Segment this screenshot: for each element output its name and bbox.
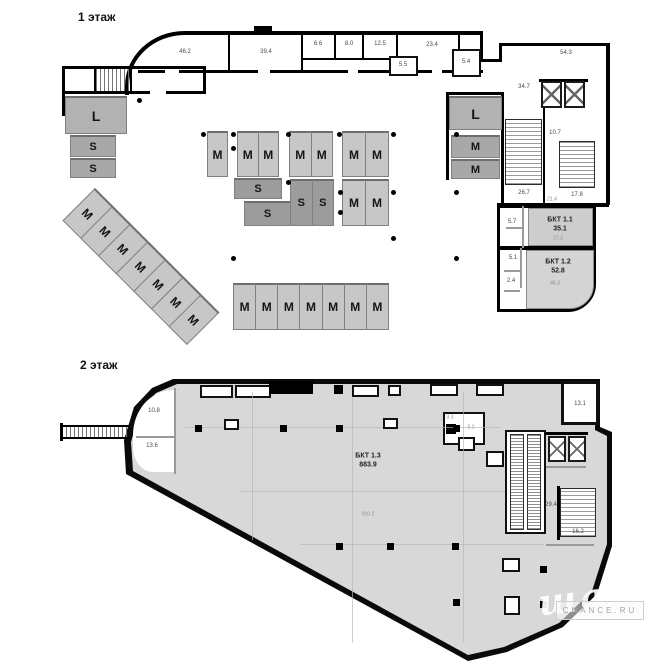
- storage-unit-s: S: [234, 178, 282, 199]
- storage-unit-m: M: [237, 131, 259, 177]
- door-gap: [258, 70, 270, 73]
- column-dot: [454, 132, 459, 137]
- wall: [62, 66, 206, 69]
- bkt11-area: 35.1: [553, 226, 567, 233]
- area-label: 23.4: [426, 42, 438, 48]
- elevator: [541, 81, 562, 108]
- grid-line: [240, 491, 505, 492]
- area-label: 5.4: [462, 59, 470, 65]
- wall-room: [200, 385, 233, 398]
- door-gap: [348, 70, 358, 73]
- wall-room: [352, 385, 379, 397]
- wall: [546, 466, 586, 468]
- column-dot: [338, 210, 343, 215]
- column: [195, 425, 202, 432]
- wall: [203, 31, 483, 35]
- wall: [136, 436, 174, 438]
- fixture-box: [224, 419, 239, 430]
- wall: [301, 58, 398, 60]
- area-label: 54.3: [560, 50, 572, 56]
- wall: [130, 66, 132, 93]
- wall: [522, 206, 524, 248]
- wall: [546, 544, 594, 546]
- storage-unit-s: S: [290, 179, 313, 226]
- area-label: 10.8: [148, 408, 160, 414]
- column: [540, 566, 547, 573]
- watermark-site: CHANCE.RU: [556, 601, 644, 620]
- floor-plan-canvas: 1 этаж L S S L: [0, 0, 670, 670]
- wall-box: [486, 451, 504, 467]
- wall: [62, 66, 65, 94]
- column: [387, 543, 394, 550]
- bkt13-area: 883.9: [359, 462, 377, 469]
- wall: [499, 43, 609, 46]
- dimension-label: 21.4: [547, 198, 557, 203]
- column-dot: [337, 132, 342, 137]
- storage-unit-l: L: [65, 96, 127, 134]
- area-label: 5.5: [399, 62, 407, 68]
- storage-unit-m: M: [255, 283, 278, 330]
- area-label: 6.6: [314, 41, 322, 47]
- column-dot: [454, 256, 459, 261]
- storage-unit-m: M: [289, 131, 312, 177]
- wall: [506, 227, 522, 229]
- column-dot: [231, 256, 236, 261]
- area-label: 10.7: [549, 130, 561, 136]
- storage-unit-s: S: [70, 158, 116, 178]
- bottom-unit-strip: M M M M M M M: [233, 283, 389, 330]
- bridge-wall: [62, 437, 130, 439]
- wall: [606, 43, 610, 205]
- bkt12-name: БКТ 1.2: [545, 259, 570, 266]
- storage-unit-m: M: [207, 131, 228, 177]
- area-label: 34.7: [518, 84, 530, 90]
- bkt12-sub-area: 46.3: [550, 282, 560, 287]
- area-label: 5.1: [509, 255, 517, 261]
- solid-wall-block: [269, 381, 313, 394]
- elevator: [568, 436, 586, 462]
- column: [453, 425, 460, 432]
- area-label: 13.6: [146, 443, 158, 449]
- column-dot: [391, 236, 396, 241]
- floor2-title: 2 этаж: [80, 358, 118, 372]
- area-label: 12.5: [374, 41, 386, 47]
- storage-unit-m: M: [366, 283, 389, 330]
- wall: [62, 91, 206, 94]
- area-label: 5.7: [508, 219, 516, 225]
- fixture-box: [504, 596, 520, 615]
- storage-unit-m: M: [342, 131, 366, 177]
- area-label: 8.0: [345, 41, 353, 47]
- storage-unit-s: S: [70, 135, 116, 157]
- storage-unit-m: M: [311, 131, 334, 177]
- wall: [203, 66, 206, 94]
- storage-unit-m: M: [299, 283, 322, 330]
- wall: [362, 31, 364, 60]
- wall: [334, 31, 336, 60]
- wall: [254, 26, 272, 35]
- wall: [546, 432, 588, 435]
- area-label: 17.8: [571, 192, 583, 198]
- elevator: [564, 81, 585, 108]
- column-dot: [391, 190, 396, 195]
- staircase: [559, 141, 595, 188]
- storage-unit-m: M: [344, 283, 367, 330]
- wall: [228, 31, 230, 71]
- wall-room: [388, 385, 401, 396]
- wall-block: [334, 385, 343, 394]
- grid-line: [463, 392, 464, 642]
- storage-unit-m: M: [365, 131, 389, 177]
- wall-room: [235, 385, 271, 398]
- floor1-title: 1 этаж: [78, 10, 116, 24]
- wall: [174, 388, 176, 474]
- column-dot: [286, 132, 291, 137]
- storage-unit-s: S: [244, 201, 291, 226]
- storage-unit-m: M: [277, 283, 300, 330]
- wall: [504, 290, 520, 292]
- wall: [504, 270, 520, 272]
- storage-unit-m: M: [258, 131, 280, 177]
- bridge: [62, 427, 130, 437]
- column: [336, 425, 343, 432]
- column: [336, 543, 343, 550]
- entry-stairs: [96, 69, 129, 91]
- wall: [446, 92, 504, 95]
- door-gap: [432, 70, 442, 73]
- bkt11-sub-area: 27.3: [553, 237, 563, 242]
- storage-unit-l: L: [449, 96, 502, 130]
- staircase: [505, 119, 542, 185]
- column-dot: [231, 132, 236, 137]
- wall: [301, 31, 303, 71]
- column-dot: [391, 132, 396, 137]
- shaft-box: [458, 437, 475, 451]
- area-label: 16.2: [572, 529, 584, 535]
- wall: [60, 423, 63, 441]
- escalator-lane: [510, 434, 524, 530]
- column: [453, 599, 460, 606]
- storage-unit-m: M: [365, 179, 389, 226]
- column-dot: [137, 98, 142, 103]
- bkt13-name: БКТ 1.3: [355, 453, 380, 460]
- wall: [520, 248, 522, 288]
- area-label: 46.2: [179, 49, 191, 55]
- area-label: 2.4: [507, 278, 515, 284]
- fixture-box: [502, 558, 520, 572]
- grid-line: [252, 392, 253, 540]
- column-dot: [338, 190, 343, 195]
- column: [452, 543, 459, 550]
- bkt12-area: 52.8: [551, 268, 565, 275]
- door-gap: [165, 70, 179, 73]
- wall-room: [430, 384, 458, 396]
- escalator-lane: [527, 434, 541, 530]
- column-dot: [454, 190, 459, 195]
- wall: [543, 108, 545, 205]
- area-label: 3.3: [447, 416, 454, 421]
- storage-unit-s: S: [312, 179, 335, 226]
- area-label: 26.7: [518, 190, 530, 196]
- area-label: 39.4: [260, 49, 272, 55]
- column-dot: [201, 132, 206, 137]
- diagonal-unit-strip: M M M M M M M: [62, 188, 219, 345]
- curved-wall: [125, 31, 209, 95]
- grid-line: [352, 398, 353, 643]
- storage-unit-m: M: [322, 283, 345, 330]
- wall-room: [476, 384, 504, 396]
- bkt11-name: БКТ 1.1: [547, 217, 572, 224]
- dimension-label: 910.2: [362, 513, 375, 518]
- fixture-box: [383, 418, 398, 429]
- column-dot: [286, 180, 291, 185]
- storage-unit-m: M: [233, 283, 256, 330]
- column: [280, 425, 287, 432]
- storage-unit-m: M: [342, 179, 366, 226]
- door-gap: [150, 91, 166, 94]
- elevator: [548, 436, 566, 462]
- area-label: 13.1: [574, 401, 586, 407]
- storage-unit-m: M: [451, 135, 500, 158]
- storage-unit-m: M: [451, 159, 500, 179]
- column-dot: [231, 146, 236, 151]
- area-label: 29.4: [545, 502, 557, 508]
